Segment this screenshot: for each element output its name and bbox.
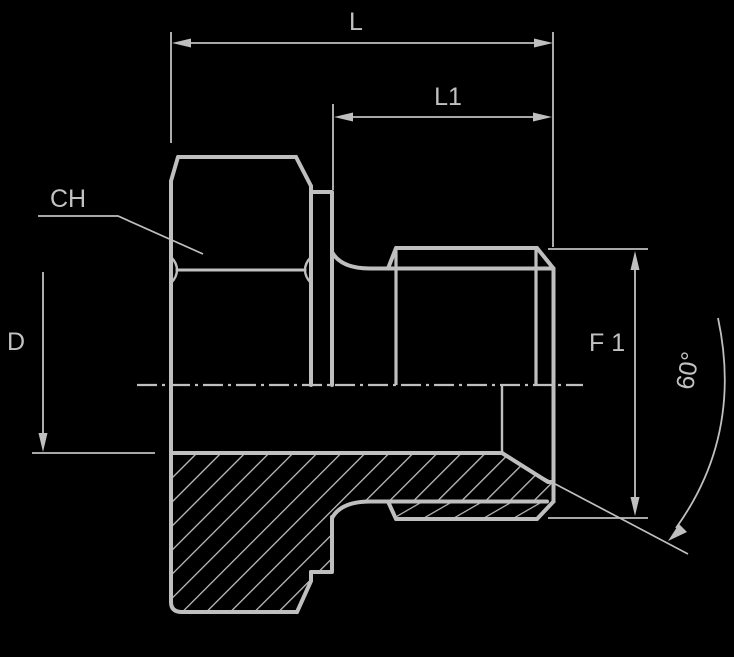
f1-arrow-down	[631, 497, 640, 516]
cone-chamfer-extension-line	[540, 476, 688, 554]
dim-label-l1: L1	[434, 83, 462, 111]
groove-curve-top	[332, 252, 370, 269]
d-arrow-down	[39, 433, 48, 452]
hatch-thread-flank-band	[397, 503, 541, 519]
dimension-d: D	[7, 272, 155, 453]
dimension-l1: L1	[333, 83, 552, 190]
technical-drawing-canvas: L L1 CH D F 1 60°	[0, 0, 734, 657]
f1-arrow-up	[631, 251, 640, 270]
dim-label-l: L	[349, 8, 363, 36]
angle-arrow	[668, 524, 687, 541]
l1-arrow-left	[334, 113, 353, 122]
dimension-ch-leader: CH	[38, 185, 203, 254]
l1-arrow-right	[533, 113, 552, 122]
ch-leader-line	[38, 216, 203, 254]
l-arrow-left	[172, 39, 191, 48]
dim-label-ch: CH	[50, 185, 86, 213]
dim-label-f1: F 1	[589, 329, 625, 357]
hatch-main-area	[160, 440, 570, 625]
l-arrow-right	[534, 39, 553, 48]
dimension-f1: F 1	[548, 249, 648, 518]
dimension-l: L	[171, 8, 553, 247]
dim-label-d: D	[7, 328, 25, 356]
angle-arc	[676, 318, 725, 528]
technical-drawing: L L1 CH D F 1 60°	[0, 0, 734, 657]
section-hatching	[160, 440, 570, 625]
dim-label-60: 60°	[671, 350, 705, 392]
